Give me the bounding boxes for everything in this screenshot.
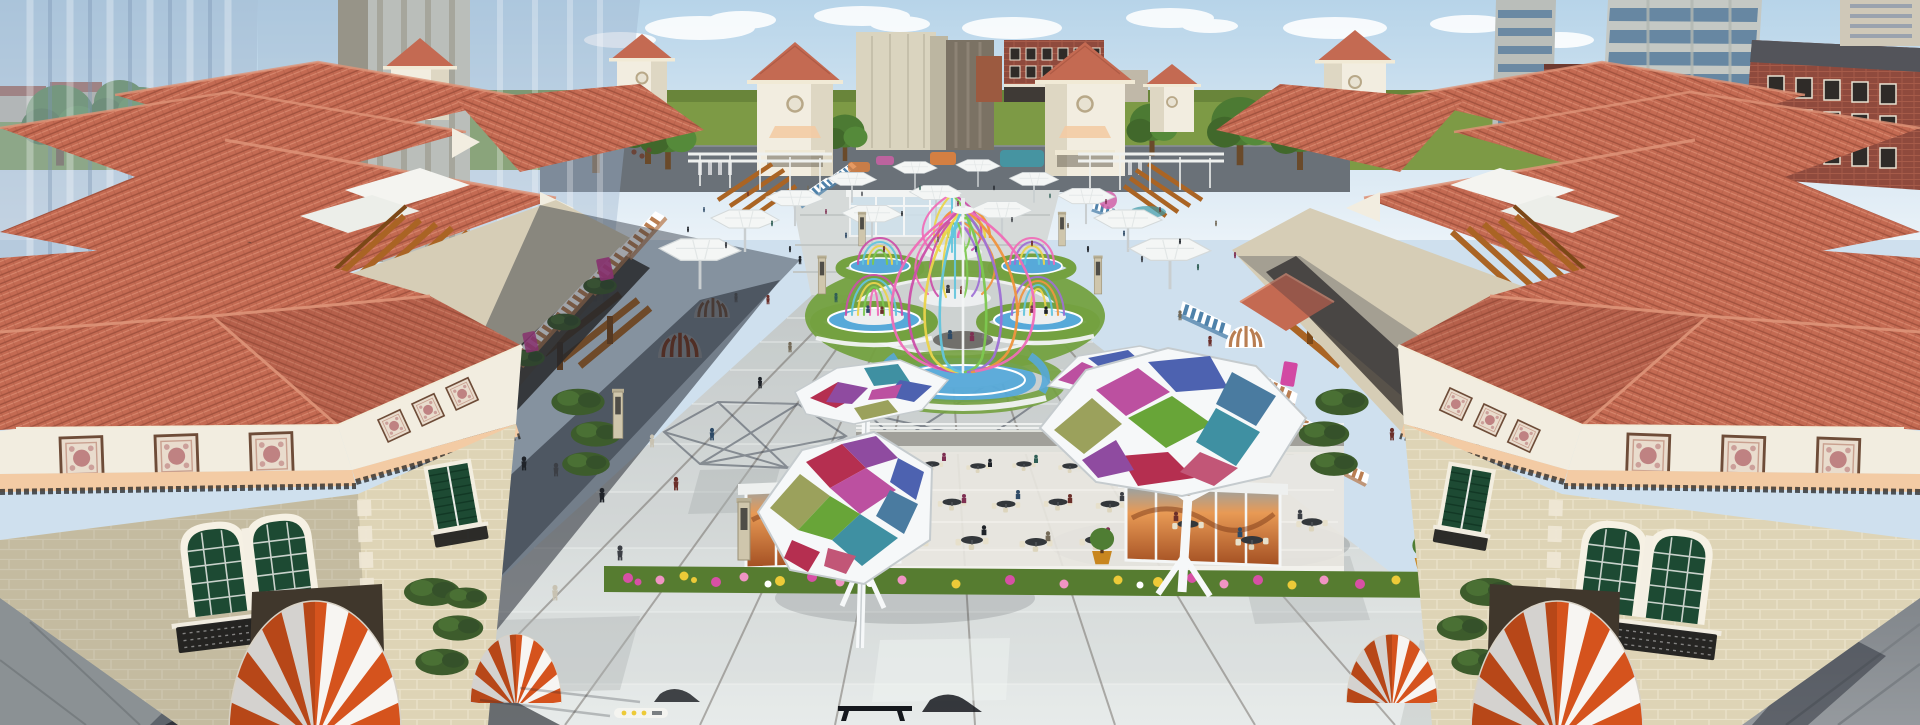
- rendered-scene: Aerial 3D rendering — Mediterranean open…: [0, 0, 1920, 725]
- plaza-rendering: Aerial 3D rendering — Mediterranean open…: [0, 0, 1920, 725]
- plaza-sign: [614, 708, 668, 718]
- shop-sign: [1280, 361, 1298, 387]
